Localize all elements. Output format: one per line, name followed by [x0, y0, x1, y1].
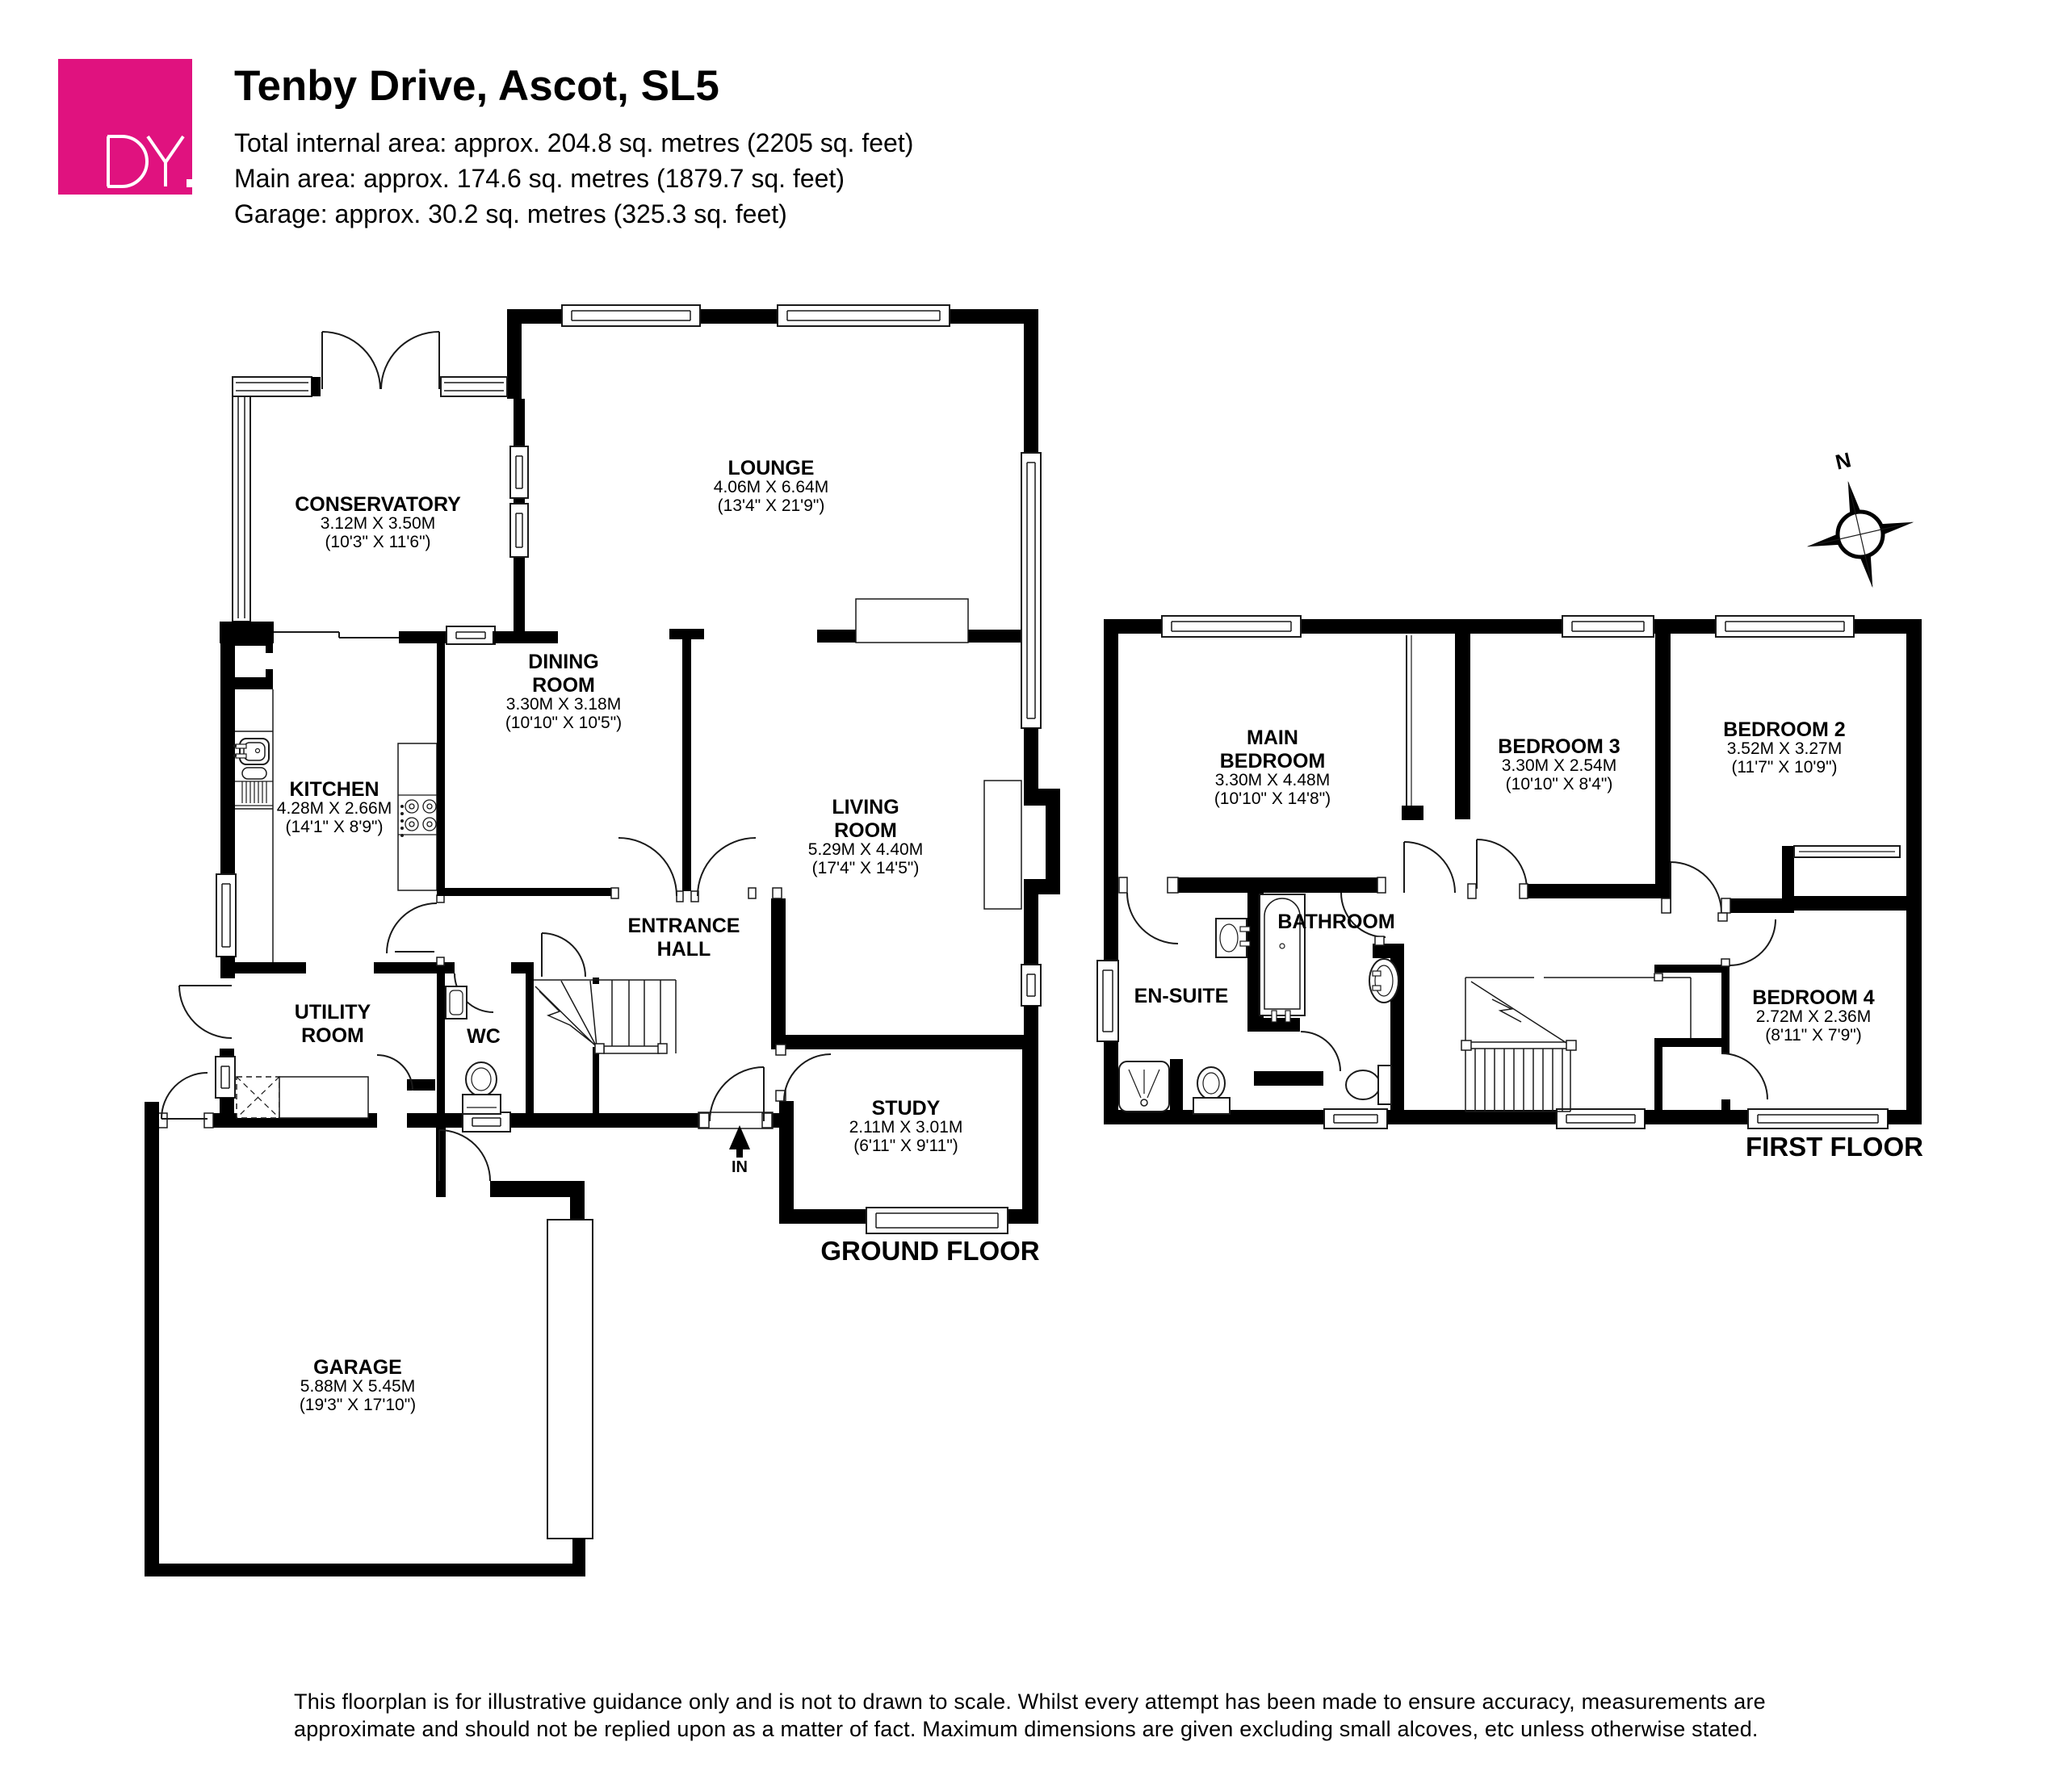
svg-text:3.30M X 3.18M: 3.30M X 3.18M — [506, 695, 621, 714]
svg-text:approximate and should not be: approximate and should not be replied up… — [294, 1717, 1759, 1741]
svg-text:HALL: HALL — [657, 938, 711, 961]
svg-text:(10'10" X 10'5"): (10'10" X 10'5") — [505, 714, 622, 732]
svg-text:UTILITY: UTILITY — [295, 1001, 371, 1024]
svg-text:(6'11" X 9'11"): (6'11" X 9'11") — [853, 1137, 958, 1155]
svg-text:5.29M X 4.40M: 5.29M X 4.40M — [808, 840, 923, 859]
svg-text:ROOM: ROOM — [532, 674, 595, 697]
svg-text:Garage: approx. 30.2 sq. metre: Garage: approx. 30.2 sq. metres (325.3 s… — [234, 199, 787, 228]
svg-text:WC: WC — [467, 1025, 501, 1048]
svg-text:(11'7" X 10'9"): (11'7" X 10'9") — [1731, 758, 1837, 777]
svg-text:FIRST FLOOR: FIRST FLOOR — [1746, 1132, 1923, 1162]
svg-text:Total internal area: approx. 2: Total internal area: approx. 204.8 sq. m… — [234, 128, 913, 157]
svg-text:LIVING: LIVING — [832, 796, 899, 819]
svg-text:EN-SUITE: EN-SUITE — [1134, 985, 1229, 1007]
svg-text:4.28M X 2.66M: 4.28M X 2.66M — [277, 799, 392, 818]
svg-text:(8'11" X 7'9"): (8'11" X 7'9") — [1765, 1026, 1861, 1045]
svg-text:2.72M X 2.36M: 2.72M X 2.36M — [1756, 1007, 1871, 1026]
svg-text:(14'1" X 8'9"): (14'1" X 8'9") — [286, 818, 384, 836]
svg-text:(19'3" X 17'10"): (19'3" X 17'10") — [300, 1396, 416, 1414]
svg-text:BEDROOM 3: BEDROOM 3 — [1498, 735, 1620, 758]
svg-text:5.88M X 5.45M: 5.88M X 5.45M — [300, 1377, 415, 1396]
svg-text:Main area: approx. 174.6 sq. m: Main area: approx. 174.6 sq. metres (187… — [234, 164, 845, 193]
svg-text:(10'3" X 11'6"): (10'3" X 11'6") — [325, 533, 430, 551]
svg-text:4.06M X 6.64M: 4.06M X 6.64M — [714, 478, 828, 496]
svg-text:BATHROOM: BATHROOM — [1277, 911, 1394, 933]
svg-text:(10'10" X 8'4"): (10'10" X 8'4") — [1506, 775, 1613, 793]
svg-text:3.30M X 4.48M: 3.30M X 4.48M — [1215, 771, 1330, 789]
svg-text:3.30M X 2.54M: 3.30M X 2.54M — [1502, 756, 1616, 775]
svg-text:BEDROOM: BEDROOM — [1220, 750, 1326, 772]
svg-text:ROOM: ROOM — [301, 1024, 364, 1047]
svg-text:GROUND FLOOR: GROUND FLOOR — [820, 1236, 1039, 1266]
svg-text:ROOM: ROOM — [834, 819, 897, 842]
svg-text:LOUNGE: LOUNGE — [728, 457, 815, 479]
svg-text:BEDROOM 4: BEDROOM 4 — [1752, 986, 1875, 1009]
svg-text:GARAGE: GARAGE — [313, 1356, 402, 1379]
svg-text:CONSERVATORY: CONSERVATORY — [295, 493, 461, 516]
svg-text:BEDROOM 2: BEDROOM 2 — [1723, 718, 1845, 741]
svg-text:KITCHEN: KITCHEN — [289, 778, 379, 801]
svg-text:MAIN: MAIN — [1247, 726, 1298, 749]
svg-text:Tenby Drive, Ascot, SL5: Tenby Drive, Ascot, SL5 — [234, 62, 719, 110]
svg-text:(10'10" X 14'8"): (10'10" X 14'8") — [1214, 789, 1331, 808]
svg-text:IN: IN — [732, 1158, 748, 1176]
svg-text:This floorplan is for illustra: This floorplan is for illustrative guida… — [294, 1689, 1766, 1714]
svg-text:3.52M X 3.27M: 3.52M X 3.27M — [1727, 739, 1842, 758]
svg-text:3.12M X 3.50M: 3.12M X 3.50M — [321, 514, 435, 533]
svg-text:2.11M X 3.01M: 2.11M X 3.01M — [849, 1118, 963, 1137]
svg-text:(13'4" X 21'9"): (13'4" X 21'9") — [718, 496, 825, 515]
svg-text:DINING: DINING — [528, 651, 599, 673]
svg-text:(17'4" X 14'5"): (17'4" X 14'5") — [812, 859, 920, 877]
svg-text:ENTRANCE: ENTRANCE — [628, 915, 740, 937]
svg-text:STUDY: STUDY — [872, 1097, 941, 1120]
